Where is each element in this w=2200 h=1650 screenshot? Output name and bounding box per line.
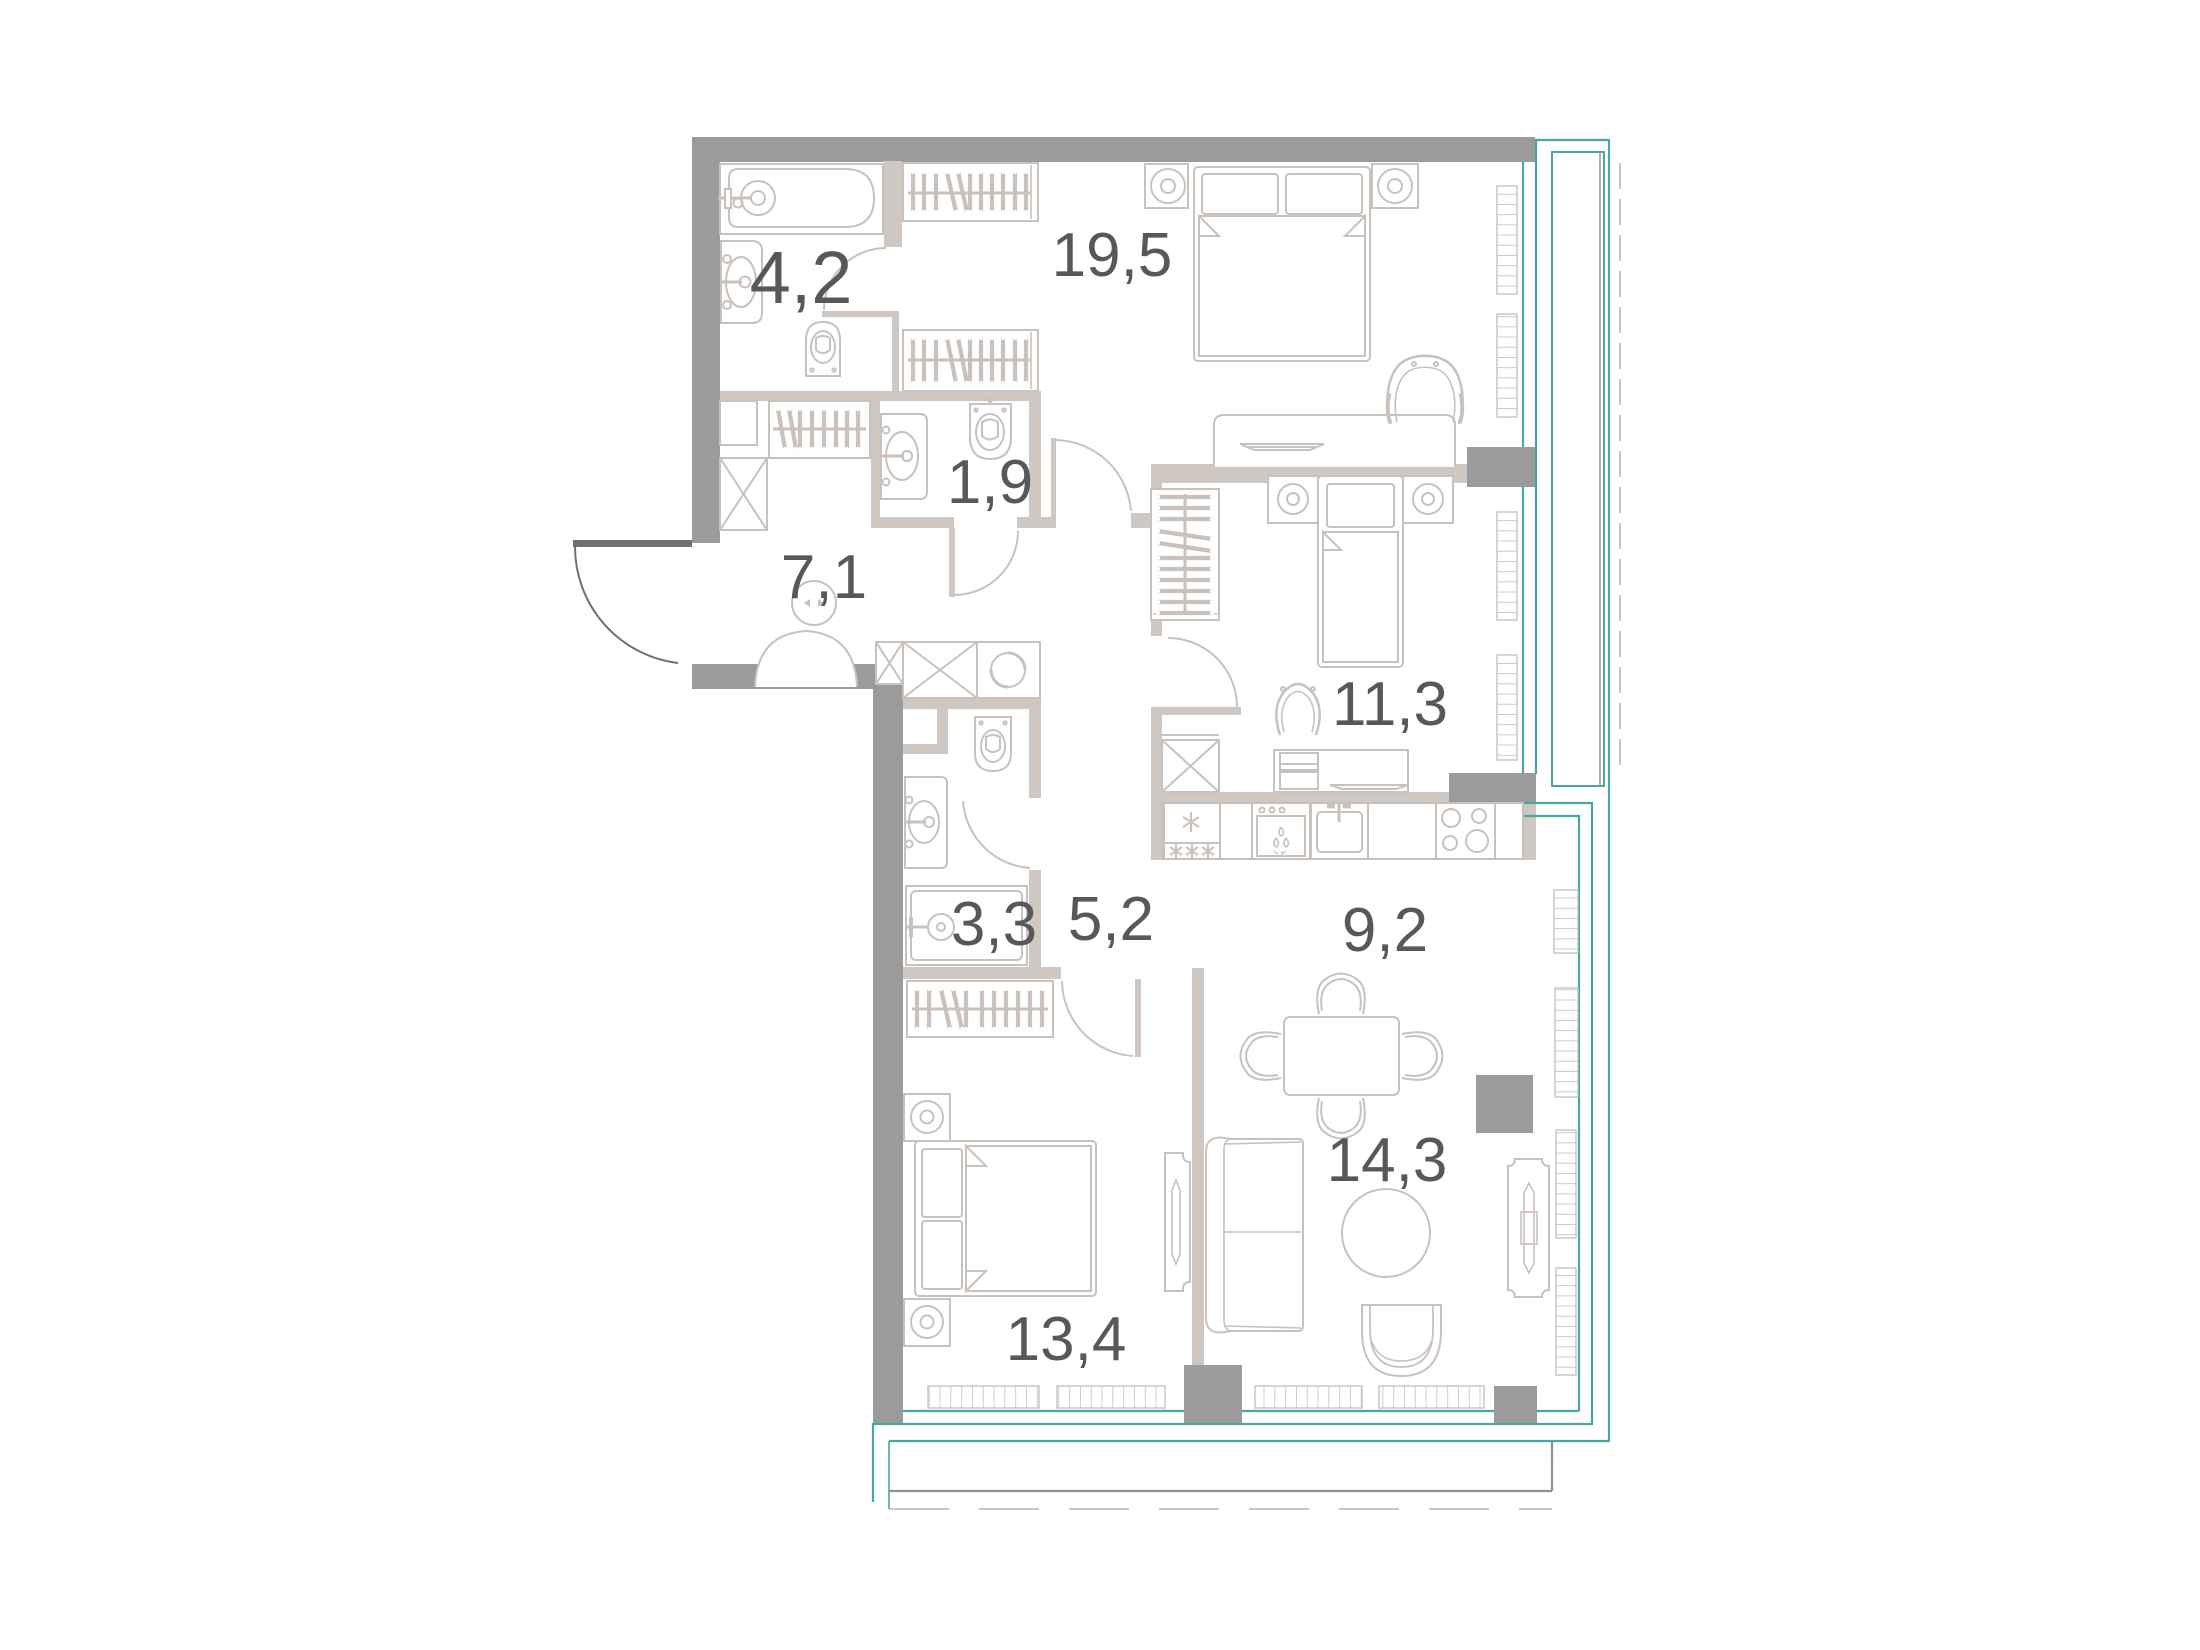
svg-text:9,2: 9,2 — [1342, 896, 1428, 965]
svg-text:7,1: 7,1 — [781, 543, 867, 612]
svg-text:11,3: 11,3 — [1332, 670, 1448, 739]
svg-text:14,3: 14,3 — [1327, 1126, 1448, 1195]
svg-text:1,9: 1,9 — [947, 448, 1033, 517]
svg-text:5,2: 5,2 — [1068, 885, 1154, 954]
svg-text:3,3: 3,3 — [951, 890, 1037, 959]
svg-text:4,2: 4,2 — [750, 236, 853, 319]
svg-text:13,4: 13,4 — [1006, 1305, 1127, 1374]
svg-text:19,5: 19,5 — [1052, 221, 1173, 290]
